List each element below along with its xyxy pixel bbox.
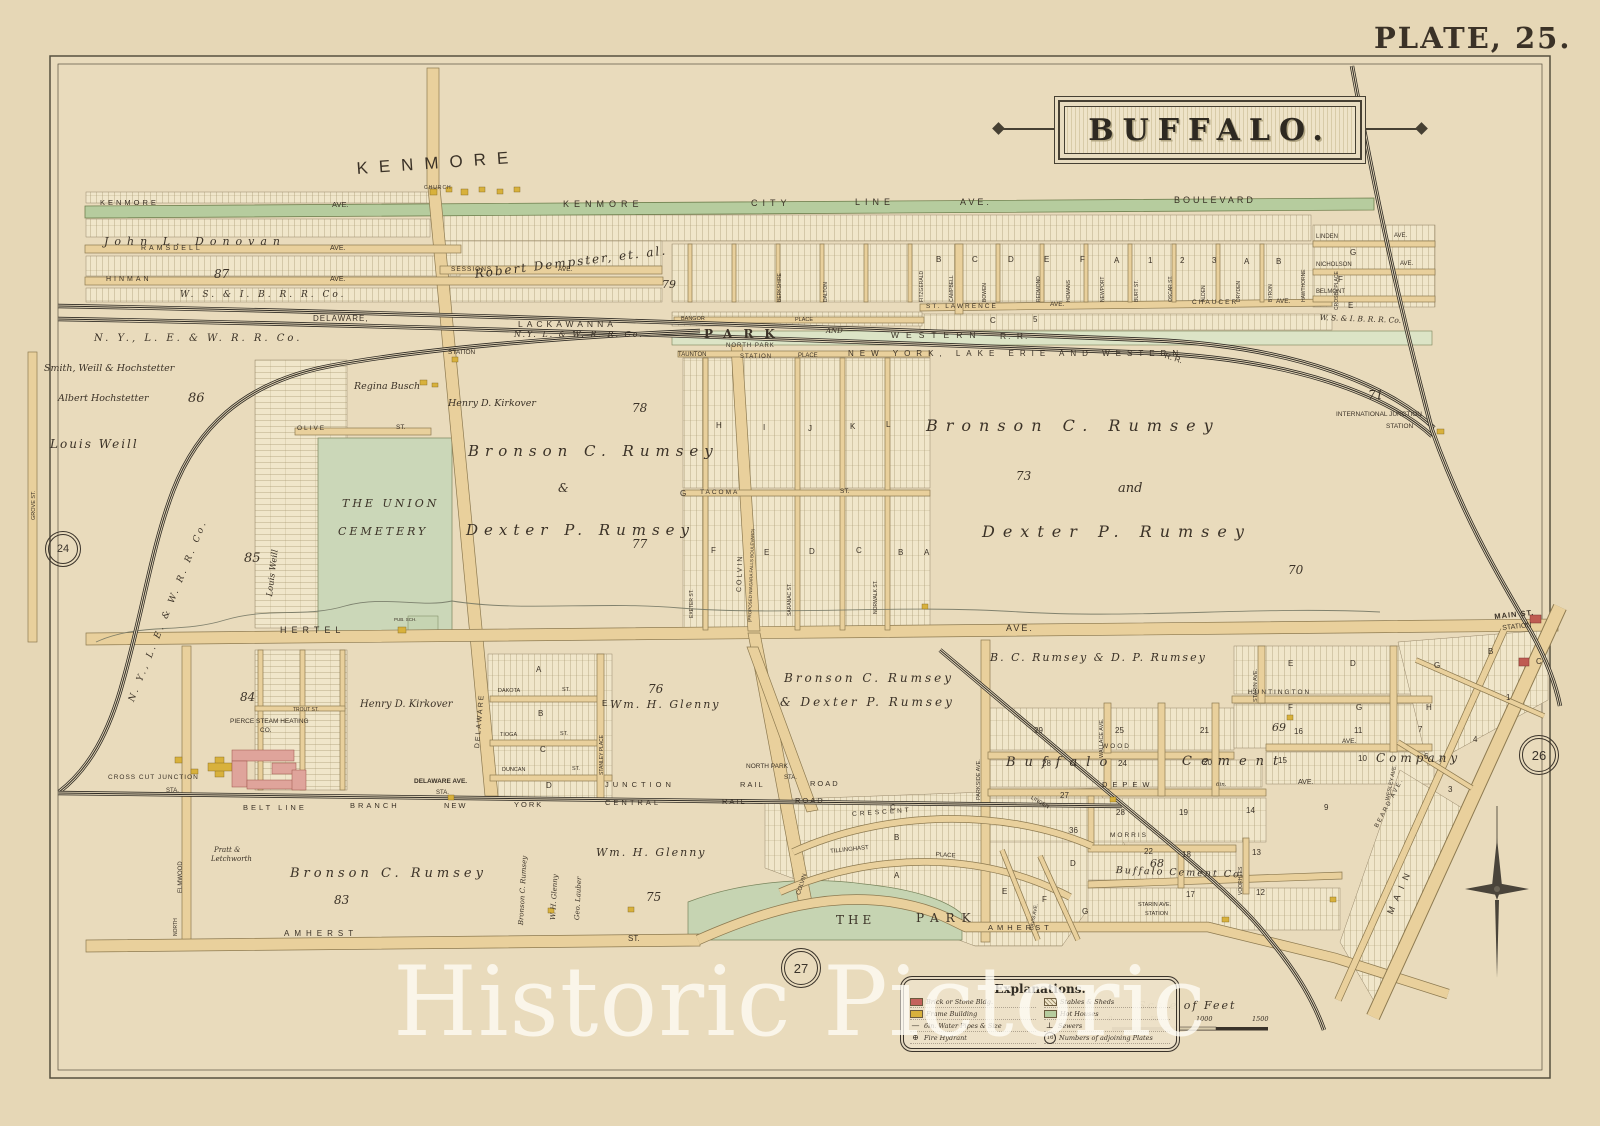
station-label: STA. [436, 790, 449, 796]
street-label: PLACE [936, 852, 956, 859]
station-label: STATION [448, 350, 475, 357]
block-letter: F [711, 547, 716, 555]
section-number: 75 [646, 891, 661, 903]
property-label-dexter-hertel: & Dexter P. Rumsey [780, 696, 955, 708]
block-letter: B [1276, 258, 1281, 266]
street-label-wood: WOOD [1102, 744, 1131, 751]
property-label-and: and [1118, 482, 1142, 495]
railroad-label-rr: R. R. [1000, 332, 1029, 341]
street-label-kenmore-ave-w: KENMORE [100, 199, 159, 207]
section-number: 87 [214, 268, 229, 280]
block-letter: D [1008, 256, 1014, 264]
block-letter: E [602, 700, 607, 708]
lot-number: 3 [1212, 257, 1216, 265]
street-label-dalton: DALTON [824, 282, 829, 302]
railroad-label-nylew: N. Y., L. E. & W. R. R. Co. [94, 334, 302, 344]
street-label-elmwood: ELMWOOD [178, 861, 184, 893]
lot-number: 14 [1246, 807, 1255, 815]
street-label-byron: BYRON [1269, 284, 1274, 302]
block-letter: E [1348, 302, 1353, 310]
lot-number: 24 [1118, 760, 1127, 768]
street-label-oscar: OSCAR ST. [1169, 276, 1174, 302]
street-label-homans: HOMANS [1067, 280, 1072, 302]
lot-number: 4 [1473, 736, 1477, 744]
block-letter: C [540, 746, 546, 754]
street-label: ST. [628, 935, 640, 943]
block-letter: G [1082, 908, 1088, 916]
railroad-label-lackawanna: LACKAWANNA [518, 320, 617, 329]
station-label: STA. [784, 775, 797, 781]
street-label-hertel: HERTEL [280, 626, 345, 635]
lot-number: 16 [1294, 728, 1303, 736]
street-label-belmont: BELMONT [1316, 289, 1345, 295]
lot-number: 36 [1069, 827, 1078, 835]
adjoining-plate-26: 26 [1522, 738, 1556, 772]
adjoining-plate-26-number: 26 [1532, 748, 1546, 763]
property-label-kirkover-s: Henry D. Kirkover [360, 700, 453, 710]
lot-number: 28 [1116, 809, 1125, 817]
street-label: AVE. [330, 245, 345, 252]
railroad-label-rail2: RAIL [722, 798, 747, 806]
street-label-exeter: EXETER ST. [690, 589, 695, 618]
railroad-label-rail: RAIL [740, 781, 765, 789]
street-label: AVE. [1394, 233, 1407, 239]
street-label-tacoma: TACOMA [700, 490, 739, 497]
block-letter: D [546, 782, 552, 790]
block-letter: A [1114, 257, 1119, 265]
railroad-label-delaware: DELAWARE, [313, 315, 369, 323]
street-label-dryden: DRYDEN [1237, 281, 1242, 302]
station-label: STATION [740, 354, 772, 360]
lot-number: 10 [1358, 755, 1367, 763]
street-label: AVE. [1276, 299, 1290, 306]
street-label-hawthorne: HAWTHORNE [1302, 269, 1307, 302]
block-letter: H [716, 422, 722, 430]
street-label-boulevard: BOULEVARD [1174, 196, 1256, 205]
property-label-glenny-75: Wm. H. Glenny [596, 847, 707, 858]
property-label-smith: Smith, Weill & Hochstetter [44, 364, 174, 374]
street-label-parkside: PARKSIDE AVE. [977, 759, 983, 800]
street-label-wallace: WALLACE AVE. [1100, 719, 1106, 758]
section-number: 83 [334, 894, 349, 906]
property-label-bc-dp: B. C. Rumsey & D. P. Rumsey [990, 652, 1207, 663]
lot-number: 1 [1506, 694, 1510, 702]
property-label-buffalo-cement-2: Cement [1182, 755, 1287, 768]
block-letter: B [894, 834, 899, 842]
railroad-label-belt-line: BELT LINE [243, 804, 307, 812]
section-number: 70 [1288, 564, 1303, 576]
block-letter: J [808, 425, 812, 433]
block-letter: E [764, 549, 769, 557]
lot-number: 28 [1042, 760, 1051, 768]
lot-number: 20 [1203, 759, 1212, 767]
street-label-saranac: SARANAC ST. [788, 583, 793, 616]
street-label-stanley: STANLEY PLACE [600, 735, 605, 775]
railroad-label-and: AND [826, 328, 843, 335]
lot-number: 25 [1115, 727, 1124, 735]
block-letter: G [680, 490, 686, 498]
street-label-taunton: TAUNTON [678, 352, 706, 358]
church-label: CHURCH [424, 186, 452, 191]
street-label-duncan: DUNCAN [502, 768, 526, 774]
lot-number: 19 [1179, 809, 1188, 817]
street-label: ST. [840, 489, 849, 496]
street-label: PLACE [795, 318, 813, 324]
block-letter: F [1042, 896, 1047, 904]
property-label-bronson-83: Bronson C. Rumsey [290, 867, 487, 880]
block-letter: B [936, 256, 941, 264]
street-label: AVE. [1342, 739, 1356, 746]
lot-number: 1 [1148, 257, 1152, 265]
street-label-dakota: DAKOTA [498, 689, 520, 695]
station-label: STATION [1145, 912, 1168, 918]
lot-number: 6 [1424, 753, 1428, 761]
street-label-amherst-w: AMHERST [284, 930, 358, 938]
block-letter: L [886, 421, 890, 429]
street-label-chaucer: CHAUCER [1192, 300, 1238, 307]
street-label-kenmore-ave: KENMORE [563, 200, 644, 209]
street-label-bowen: BOWEN [983, 283, 988, 302]
street-label-voorhees: VOORHEES [1239, 867, 1244, 895]
railroad-label-north-park: NORTH PARK [726, 343, 775, 349]
block-letter: A [536, 666, 541, 674]
lot-number: 12 [1256, 889, 1265, 897]
plate-number: PLATE, 25. [1374, 24, 1571, 53]
lot-number: 13 [1252, 849, 1261, 857]
city-banner-title: BUFFALO. [1088, 113, 1332, 148]
block-letter: A [924, 549, 929, 557]
railroad-label-wsibrr-w: W. S. & I. B. R. R. Co. [180, 291, 346, 300]
property-label-dexter-e: Dexter P. Rumsey [982, 524, 1252, 540]
street-label-nicholson: NICHOLSON [1316, 262, 1352, 268]
station-label-delaware-ave: DELAWARE AVE. [414, 779, 467, 786]
street-label-berkshire: BERKSHIRE [778, 273, 783, 302]
street-label: ST. [562, 688, 570, 694]
railroad-label-road2: ROAD [795, 797, 825, 805]
street-label-starin-v: STARIN AVE. [1254, 669, 1260, 702]
block-letter: C [1536, 658, 1542, 666]
property-label-albert: Albert Hochstetter [58, 394, 149, 404]
railroad-label-western: WESTERN [891, 331, 983, 340]
street-label-depew: DEPEW [1102, 781, 1155, 789]
street-label: AVE. [1006, 624, 1034, 633]
lot-number: 3 [1448, 786, 1452, 794]
area-label-union-cemetery: THE UNION [342, 498, 439, 509]
property-label-glenny-76: Wm. H. Glenny [610, 699, 721, 710]
block-letter: E [1044, 256, 1049, 264]
block-letter: G [1434, 662, 1440, 670]
railroad-label-york: YORK [514, 801, 543, 809]
block-letter: D [1070, 860, 1076, 868]
lot-number: 11 [1354, 727, 1362, 735]
banner-ornament-left-icon [1002, 128, 1054, 130]
section-number: 79 [662, 279, 676, 290]
street-label: ST. [560, 732, 568, 738]
lot-number: 17 [1186, 891, 1195, 899]
lot-number: 15 [1278, 757, 1287, 765]
property-label-kirkover-n: Henry D. Kirkover [448, 399, 536, 409]
block-letter: B [898, 549, 903, 557]
railroad-label-road: ROAD [810, 780, 840, 788]
watermark: Historic Pictoric [393, 946, 1207, 1058]
city-banner: BUFFALO. [1058, 100, 1362, 160]
school-label: PUB. SCH. [394, 618, 417, 623]
railroad-label-branch: BRANCH [350, 802, 400, 810]
block-letter: C [856, 547, 862, 555]
block-letter: A [894, 872, 899, 880]
property-label-regina: Regina Busch [354, 382, 420, 392]
street-label-hinman: HINMAN [106, 276, 152, 283]
street-label: PLACE [798, 353, 818, 359]
property-label-letchworth: Letchworth [211, 856, 252, 863]
street-label-north: NORTH [174, 918, 179, 936]
section-number: 77 [632, 538, 647, 550]
street-label-grove: GROVE ST. [32, 491, 38, 520]
street-label-city-line: CITY [751, 199, 792, 208]
railroad-label-central: CENTRAL [605, 799, 661, 807]
street-label-city-line2: LINE [855, 198, 895, 207]
station-label: STA. [166, 788, 179, 794]
property-label-bronson-c: Bronson C. Rumsey [468, 444, 719, 459]
property-label-ampersand: & [558, 482, 569, 494]
lot-number: 7 [1418, 726, 1422, 734]
lot-number: 9 [1324, 804, 1328, 812]
street-label-st-lawrence: ST. LAWRENCE [926, 304, 998, 311]
street-label-bangor: BANGOR [681, 317, 705, 323]
block-letter: H [1426, 704, 1432, 712]
railroad-label-nylw: N.Y. L. & W. R. R. Co. [514, 331, 644, 339]
section-number: 85 [244, 552, 261, 565]
block-letter: E [1288, 660, 1293, 668]
railroad-label-junction: JUNCTION [605, 781, 675, 789]
section-number: 86 [188, 392, 205, 405]
street-label-trout: TROUT ST. [293, 708, 319, 713]
historic-map-sheet: BUFFALO. 24 26 27 Explanations. Brick or… [0, 0, 1600, 1126]
street-label-burt: BURT ST. [1135, 280, 1140, 302]
railroad-label-nylew-main: NEW YORK, LAKE ERIE AND WESTERN [848, 350, 1184, 358]
block-letter: B [538, 710, 543, 718]
block-letter: F [1080, 256, 1085, 264]
station-label-north-park: NORTH PARK [746, 764, 788, 771]
street-label-campbell: CAMPBELL [950, 275, 955, 302]
block-letter: C [972, 256, 978, 264]
street-label-amherst-e: AMHERST [988, 924, 1053, 932]
lot-number: 5 [1033, 316, 1037, 324]
station-label-intl-junction: INTERNATIONAL JUNCTION [1336, 412, 1422, 419]
street-label-fitzgerald: FITZGERALD [920, 271, 925, 302]
lot-number: 22 [1144, 848, 1153, 856]
block-letter: A [1244, 258, 1249, 266]
railroad-label-new: NEW [444, 802, 468, 810]
street-label-tioga: TIOGA [500, 733, 517, 739]
street-label: AVE. [1298, 779, 1313, 786]
property-label-buffalo-cement-3: Company [1376, 752, 1461, 764]
street-label: AVE. [332, 201, 349, 209]
property-label-pratt: Pratt & [214, 847, 240, 854]
area-label-cemetery: CEMETERY [338, 526, 428, 537]
block-letter: E [1002, 888, 1007, 896]
section-number: 71 [1368, 389, 1383, 401]
street-label-olive: OLIVE [297, 426, 326, 433]
adjoining-plate-24: 24 [48, 534, 78, 564]
station-label-cross-cut: CROSS CUT JUNCTION [108, 775, 199, 782]
street-label-newport: NEWPORT [1101, 277, 1106, 302]
block-letter: B [1488, 648, 1493, 656]
block-letter: D [809, 548, 815, 556]
street-label: AVE. [330, 276, 345, 283]
street-label: ST. [572, 767, 580, 773]
lot-number: 2 [1180, 257, 1184, 265]
block-letter: K [850, 423, 855, 431]
property-label-louis: Louis Weill [50, 438, 139, 450]
section-number: 73 [1016, 470, 1031, 482]
station-label-starin: STARIN AVE. [1138, 903, 1171, 909]
property-label-pierce: PIERCE STEAM HEATING [230, 719, 309, 726]
section-number: 78 [632, 402, 647, 414]
street-label-colvin: COLVIN [736, 554, 744, 592]
lot-number: 21 [1200, 727, 1209, 735]
block-letter: C [990, 317, 996, 325]
property-label-dexter-c: Dexter P. Rumsey [466, 523, 695, 538]
section-number: 76 [648, 683, 663, 695]
block-letter: G [1356, 704, 1362, 712]
lot-number: 27 [1060, 792, 1069, 800]
scale-tick: 1500 [1252, 1016, 1269, 1023]
property-label-bronson-e: Bronson C. Rumsey [926, 418, 1221, 434]
block-letter: D [1350, 660, 1356, 668]
pipe-size-label: 6in. [1216, 783, 1227, 789]
street-label-redmond: REDMOND [1037, 276, 1042, 302]
area-label-the-park: THE [836, 914, 875, 926]
street-label-norwalk: NORWALK ST. [874, 580, 879, 614]
street-label-morris: MORRIS [1110, 833, 1148, 840]
street-label: AVE. [1400, 261, 1413, 267]
adjoining-plate-24-number: 24 [57, 543, 69, 555]
block-letter: I [763, 424, 765, 432]
street-label-ramsdell: RAMSDELL [141, 245, 203, 252]
block-letter: C [890, 804, 896, 812]
railroad-label-park: PARK [704, 328, 786, 340]
street-label-alden: ALDEN [1202, 285, 1207, 302]
lot-number: 29 [1034, 727, 1043, 735]
property-label-bronson-hertel: Bronson C. Rumsey [784, 672, 954, 684]
street-label: ST. [396, 425, 405, 432]
block-letter: G [1350, 249, 1356, 257]
lot-number: 18 [1182, 851, 1191, 859]
banner-ornament-right-icon [1366, 128, 1418, 130]
section-number: 84 [240, 691, 255, 703]
street-label-linden: LINDEN [1316, 234, 1338, 240]
street-label-crosby: CROSBY PLACE [1335, 271, 1340, 310]
block-letter: F [1288, 704, 1293, 712]
property-label-pierce-co: CO. [260, 728, 272, 735]
street-label: AVE. [960, 198, 992, 207]
station-label: STATION [1386, 424, 1413, 431]
area-label-the-park2: PARK [916, 912, 978, 924]
street-label: AVE. [1050, 302, 1064, 309]
section-number: 69 [1272, 722, 1286, 733]
